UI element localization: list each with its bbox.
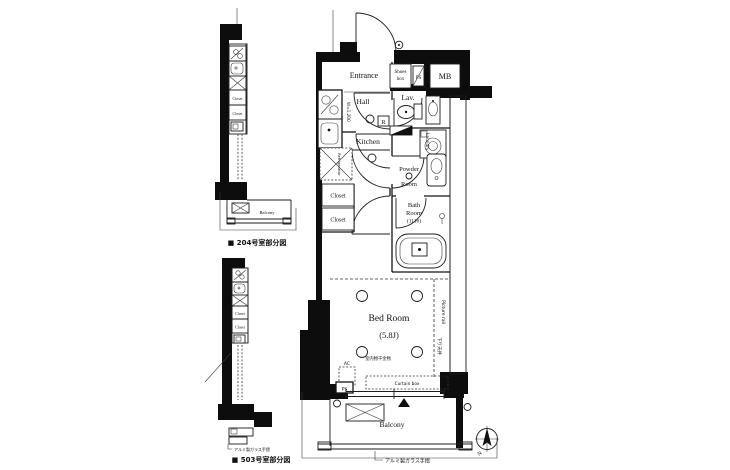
svg-text:Closet: Closet [330, 218, 346, 224]
drain-icon [464, 404, 471, 411]
kitchen-width-note: W=1,200 [346, 102, 351, 122]
curtain-box: Curtain box [366, 376, 448, 389]
railing-note: アルミ製ガラス手摺 [385, 458, 430, 465]
svg-text:Closet: Closet [233, 112, 244, 116]
svg-text:Shoes: Shoes [395, 70, 407, 75]
partial-plan-503: Closet Closet アルミ製ガラス手摺 ■ 503号室部分図 [205, 258, 290, 464]
svg-text:Closet: Closet [330, 194, 346, 200]
vanity-icon [426, 96, 440, 124]
svg-text:box: box [397, 77, 405, 82]
pipe-space-top: PS [413, 66, 424, 86]
svg-text:AC: AC [344, 361, 350, 367]
railing-note-503: アルミ製ガラス手摺 [234, 446, 270, 452]
powder-room: Powder Room [399, 154, 446, 188]
pipe-space [231, 122, 243, 131]
svg-text:Curtain box: Curtain box [395, 381, 420, 387]
washbasin-icon [427, 154, 446, 186]
caption-204: ■ 204号室部分図 [228, 238, 287, 247]
svg-text:(1116): (1116) [407, 218, 421, 225]
svg-text:R: R [381, 120, 385, 126]
dropped-ceiling-note: 下り天井 [436, 337, 443, 355]
ceiling-hook-icon [412, 347, 423, 358]
evacuation-hatch-icon [346, 404, 384, 421]
closet-upper: Closet [322, 184, 354, 206]
bed-room: Bed Room (5.8J) 室内物干金物 Picture rail 下り天井… [330, 279, 449, 393]
refrigerator-space: Refrigerator [320, 148, 352, 180]
shoes-box: Shoes box [390, 64, 411, 88]
svg-text:Room: Room [401, 181, 417, 188]
entrance-label: Entrance [350, 71, 379, 80]
ceiling-hook-icon [412, 291, 423, 302]
downlight-icon [368, 154, 376, 162]
svg-text:Laundry: Laundry [424, 133, 430, 151]
balcony-label: Balcony [260, 210, 276, 215]
compass-icon: N [475, 426, 499, 458]
svg-text:Bath: Bath [408, 202, 421, 209]
bath-room: Bath Room (1116) [396, 202, 446, 268]
kitchen-label: Kitchen [356, 137, 380, 146]
svg-text:Refrigerator: Refrigerator [337, 153, 342, 176]
entrance-door-arc [356, 13, 403, 52]
drain-icon [334, 400, 341, 407]
balcony-label: Balcony [380, 420, 405, 429]
north-entry-marker [398, 398, 410, 407]
ceiling-hook-icon [357, 347, 368, 358]
hall-label: Hall [357, 97, 370, 106]
toilet-icon [398, 104, 423, 119]
bedroom-label: Bed Room [369, 314, 411, 324]
closet-lower: Closet [322, 208, 354, 230]
ceiling-hook-icon [357, 291, 368, 302]
indoor-hanger-note: 室内物干金物 [365, 355, 391, 362]
evacuation-hatch-icon [232, 203, 249, 213]
kitchen-counter [318, 90, 342, 148]
picture-rail-note: Picture rail [440, 300, 446, 324]
svg-text:Powder: Powder [399, 166, 420, 173]
lav-label: Lav. [401, 93, 414, 102]
caption-503: ■ 503号室部分図 [232, 455, 291, 464]
svg-text:Closet: Closet [235, 312, 246, 316]
floor-plan-sheet: Entrance Shoes box PS MB Hall Lav. [0, 0, 730, 470]
svg-text:Closet: Closet [235, 326, 246, 330]
svg-text:Closet: Closet [233, 97, 244, 101]
svg-text:Room: Room [406, 210, 422, 217]
shower-icon [440, 214, 445, 225]
floor-plan-drawing: Entrance Shoes box PS MB Hall Lav. [0, 0, 730, 470]
party-wall-hatch [450, 96, 466, 374]
balcony: Balcony アルミ製ガラス手摺 [302, 392, 497, 465]
partial-plan-204: Closet Closet Balcony ■ 204号室部分図 [215, 8, 296, 247]
pipe-space [234, 335, 245, 343]
main-unit-plan: Entrance Shoes box PS MB Hall Lav. [300, 10, 499, 465]
svg-text:MB: MB [439, 72, 451, 81]
bedroom-size: (5.8J) [379, 330, 399, 340]
meter-box: MB [430, 64, 460, 88]
lower-detail: アルミ製ガラス手摺 [228, 428, 270, 452]
svg-text:PS: PS [416, 76, 422, 81]
bathtub-icon [396, 234, 446, 268]
compass-n-label: N [477, 450, 484, 457]
downlight-icon [366, 115, 374, 123]
sink-icon [321, 123, 338, 144]
